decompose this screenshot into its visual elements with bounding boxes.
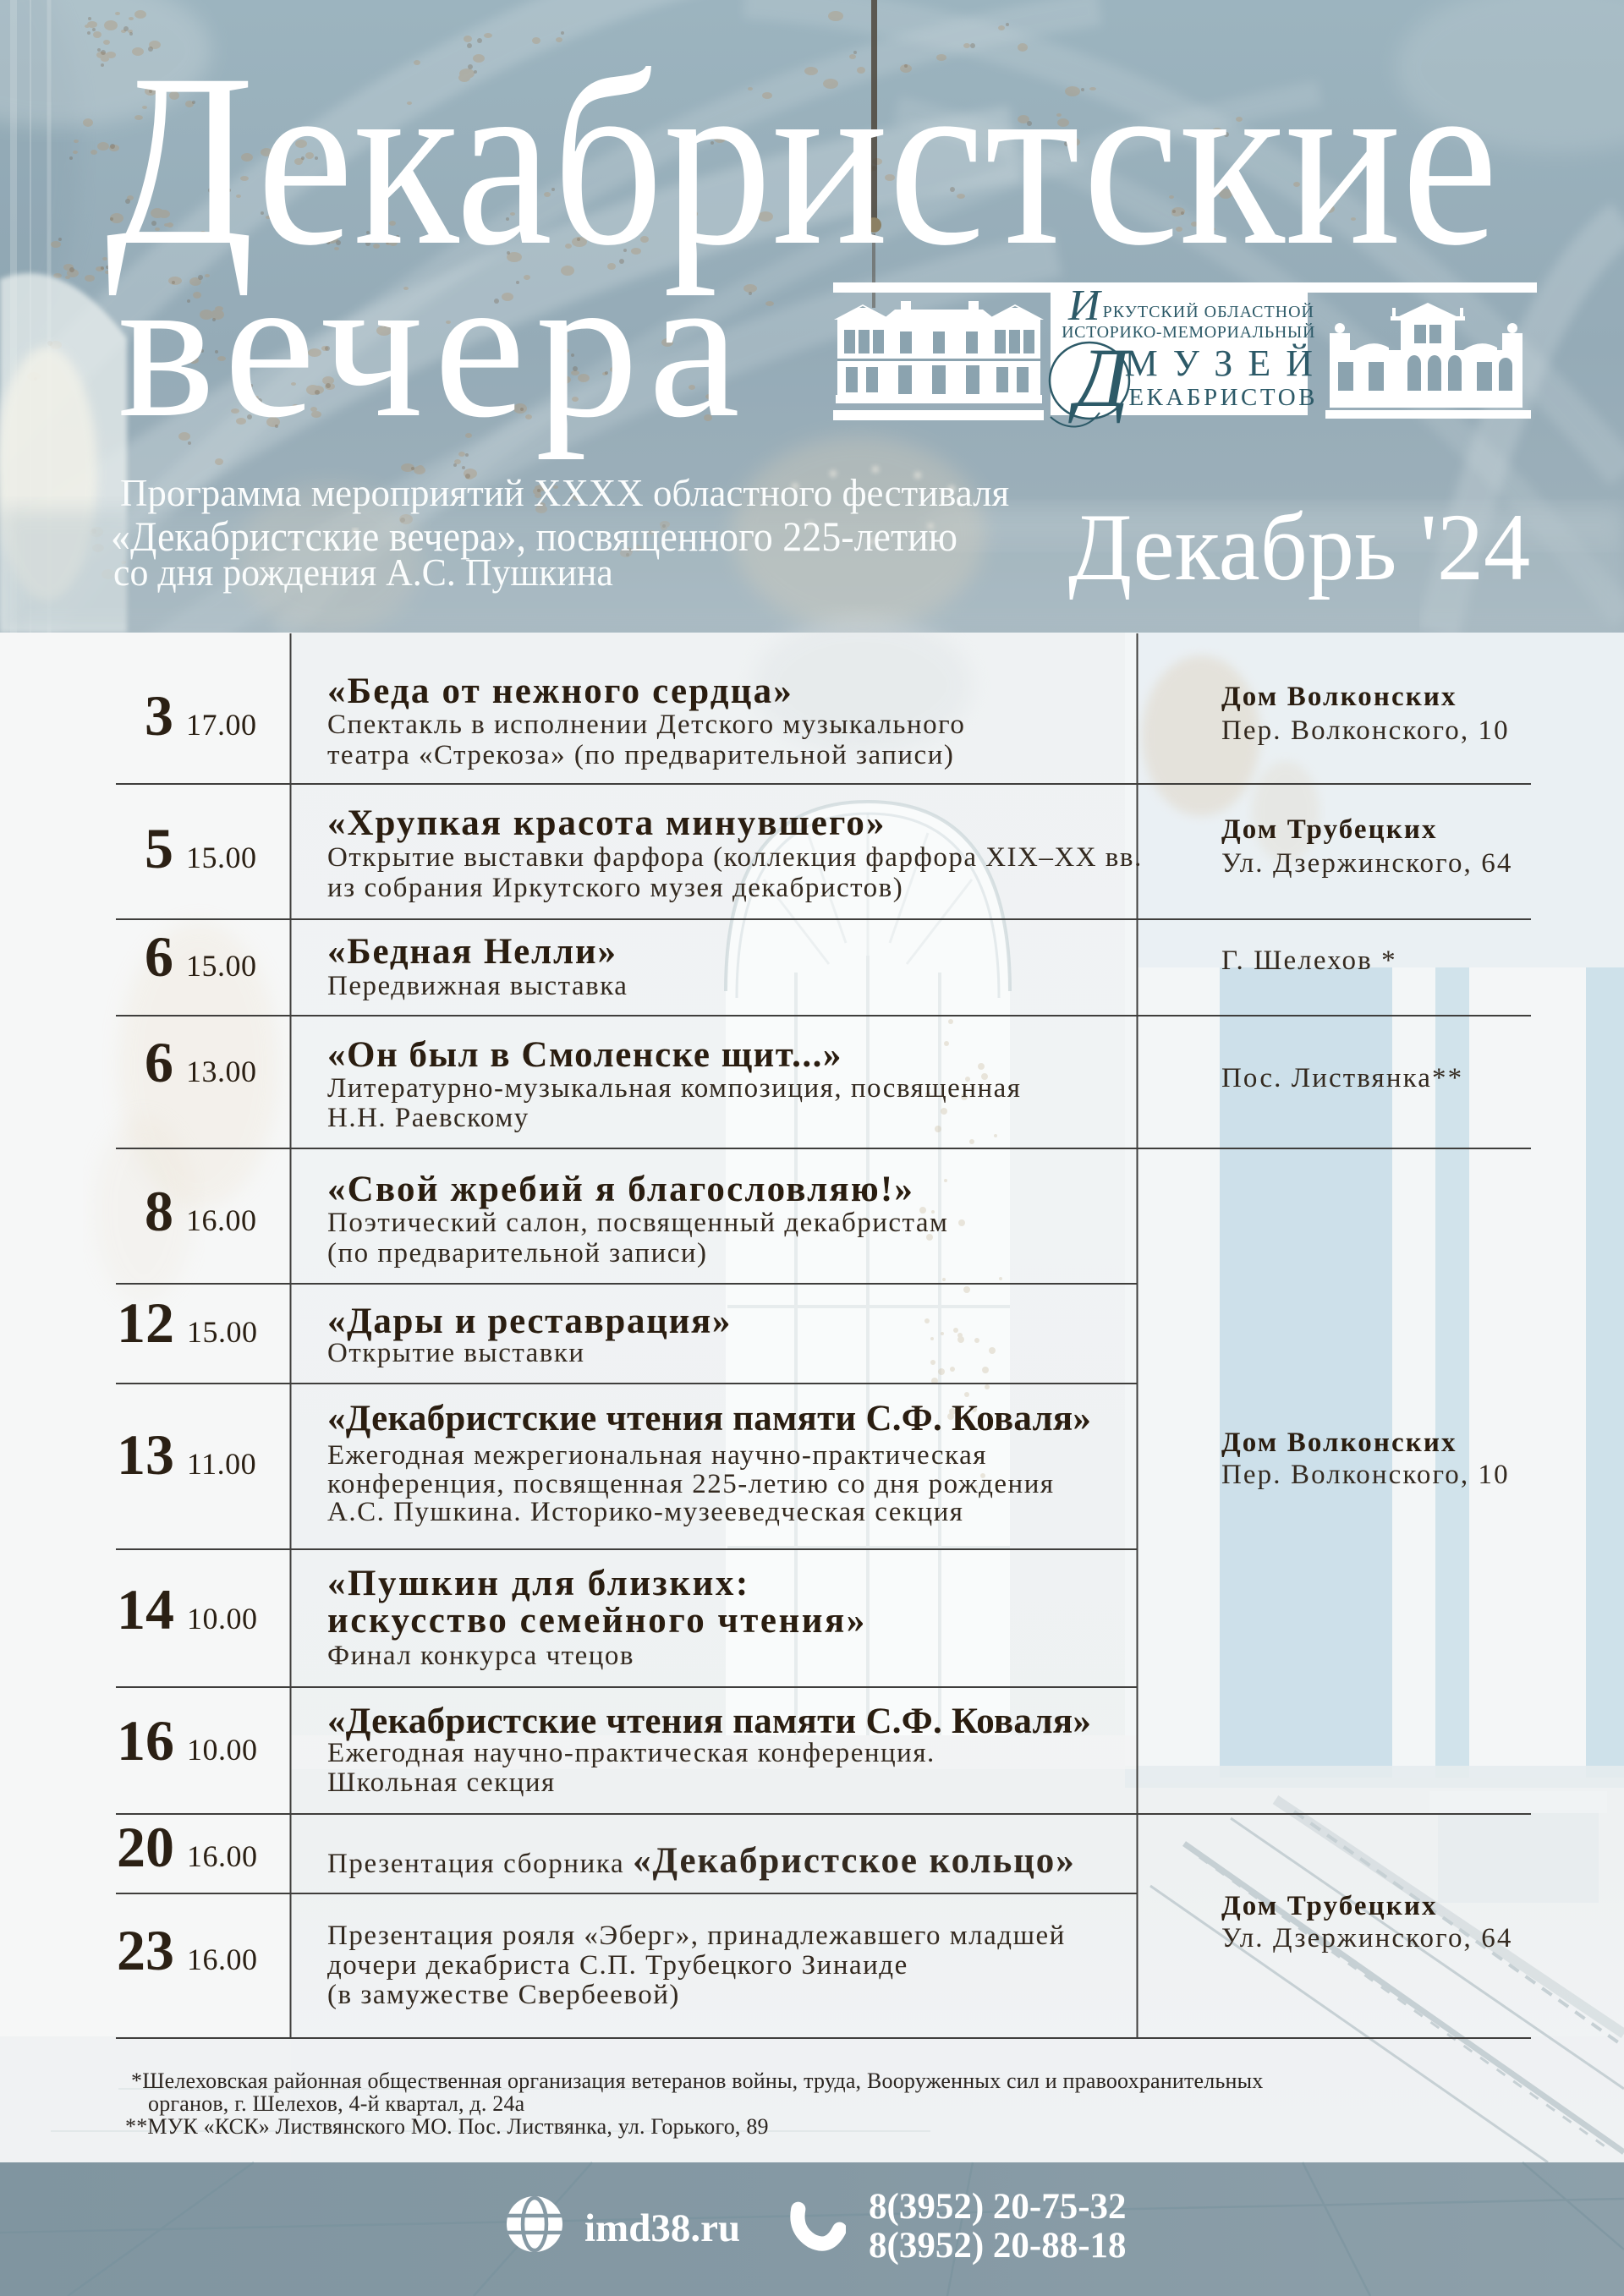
svg-text:МУЗЕЙ: МУЗЕЙ: [1125, 342, 1328, 384]
svg-text:Д: Д: [1068, 331, 1133, 425]
svg-text:РКУТСКИЙ ОБЛАСТНОЙ: РКУТСКИЙ ОБЛАСТНОЙ: [1103, 302, 1314, 321]
svg-text:ЕКАБРИСТОВ: ЕКАБРИСТОВ: [1128, 384, 1318, 411]
